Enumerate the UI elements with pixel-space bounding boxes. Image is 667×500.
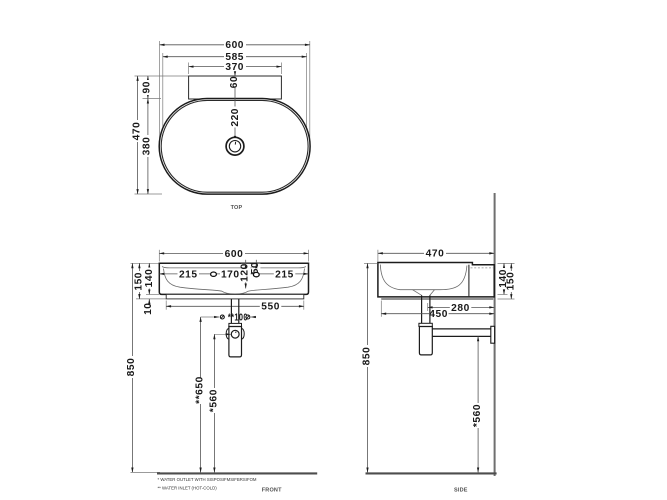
svg-text:FRONT: FRONT — [262, 488, 282, 494]
svg-text:170: 170 — [221, 269, 240, 280]
svg-text:380: 380 — [142, 137, 153, 156]
svg-text:850: 850 — [362, 347, 373, 366]
svg-text:TOP: TOP — [231, 205, 243, 211]
svg-text:450: 450 — [429, 309, 448, 320]
svg-text:140: 140 — [144, 269, 155, 288]
svg-text:215: 215 — [275, 269, 294, 280]
svg-text:10: 10 — [143, 302, 154, 314]
svg-text:150: 150 — [506, 272, 517, 291]
svg-text:90: 90 — [142, 81, 153, 93]
svg-text:600: 600 — [225, 40, 244, 51]
svg-text:220: 220 — [230, 108, 241, 127]
svg-text:**100: **100 — [228, 312, 248, 323]
svg-text:**650: **650 — [195, 376, 206, 404]
svg-text:150: 150 — [133, 272, 144, 291]
svg-text:550: 550 — [261, 302, 280, 313]
svg-text:SIDE: SIDE — [454, 488, 468, 494]
svg-text:215: 215 — [179, 269, 198, 280]
svg-text:60: 60 — [229, 76, 240, 88]
svg-text:* WATER OUTLET WITH SISPOSIFM: * WATER OUTLET WITH SISPOSIFMSIFBRSIFOM — [158, 477, 257, 482]
svg-text:600: 600 — [225, 249, 244, 260]
svg-text:470: 470 — [426, 249, 445, 260]
svg-text:280: 280 — [451, 303, 470, 314]
svg-text:*560: *560 — [472, 404, 483, 427]
svg-text:** WATER INLET (HOT-COLD): ** WATER INLET (HOT-COLD) — [158, 486, 218, 491]
svg-text:850: 850 — [126, 358, 137, 377]
svg-text:*560: *560 — [208, 389, 219, 412]
